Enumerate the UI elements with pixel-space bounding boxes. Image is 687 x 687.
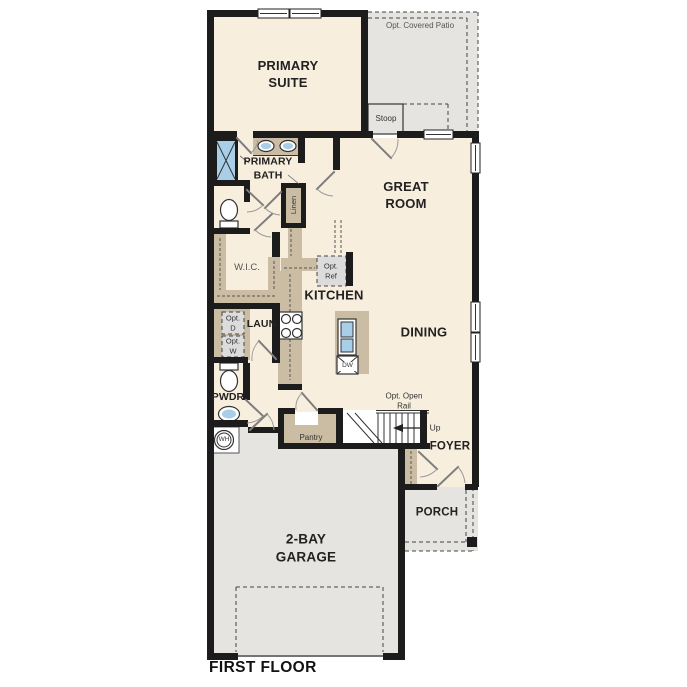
label-up: Up	[430, 422, 441, 433]
window	[290, 9, 321, 18]
range-cooktop	[278, 312, 302, 339]
label-opt-ref: Opt. Ref	[319, 261, 343, 281]
label-garage: 2-BAY GARAGE	[261, 530, 351, 565]
kitchen-counter-top	[281, 258, 317, 271]
toilet-water-closet	[220, 200, 238, 229]
label-opt-washer: Opt. W	[224, 336, 242, 356]
label-primary-bath: PRIMARY BATH	[231, 155, 305, 182]
floor-title: FIRST FLOOR	[209, 658, 317, 678]
island-sink	[338, 319, 356, 355]
label-covered-patio: Opt. Covered Patio	[386, 21, 454, 31]
label-linen: Linen	[289, 196, 299, 214]
label-powder: PWDR	[212, 391, 244, 405]
label-dishwasher: DW	[342, 362, 353, 370]
label-dining: DINING	[401, 325, 448, 342]
toilet-powder	[220, 363, 238, 392]
porch-column	[467, 537, 477, 547]
window	[471, 143, 480, 173]
window	[471, 302, 480, 332]
label-primary-suite: PRIMARY SUITE	[242, 58, 334, 92]
label-water-heater: WH	[219, 436, 230, 444]
label-wic: W.I.C.	[234, 262, 260, 274]
label-laundry: LAUN.	[247, 318, 280, 332]
window	[424, 130, 453, 139]
label-opt-dryer: Opt. D	[224, 313, 242, 333]
powder-sink	[219, 407, 240, 422]
window	[258, 9, 289, 18]
pantry-door-notch	[295, 412, 318, 425]
label-porch: PORCH	[416, 506, 459, 521]
window	[471, 333, 480, 362]
label-foyer: FOYER	[430, 440, 471, 455]
label-kitchen: KITCHEN	[304, 288, 363, 305]
label-great-room: GREAT ROOM	[371, 179, 441, 213]
floor-plan-drawing	[0, 0, 687, 687]
label-pantry: Pantry	[299, 433, 322, 443]
floor-plan: PRIMARY SUITE Opt. Covered Patio Stoop P…	[0, 0, 687, 687]
kitchen-chase	[288, 226, 302, 258]
label-opt-open-rail: Opt. Open Rail	[381, 392, 427, 413]
label-stoop: Stoop	[376, 114, 397, 124]
